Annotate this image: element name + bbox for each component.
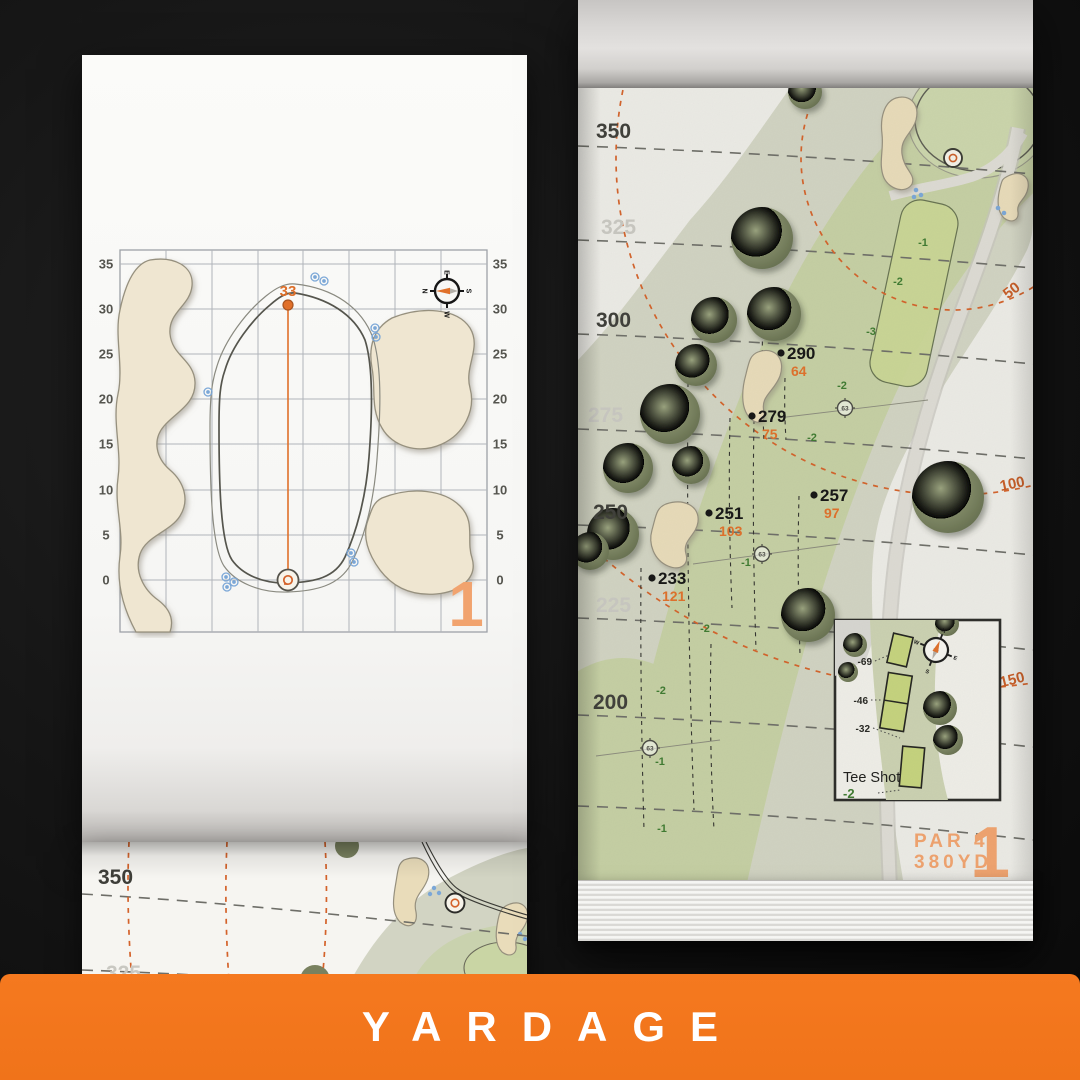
tick-25-r: 25	[493, 347, 507, 362]
tick-30-r: 30	[493, 302, 507, 317]
tick-15-r: 15	[493, 437, 507, 452]
pin-depth-line: 33	[278, 283, 299, 591]
compass-w: W	[443, 311, 450, 318]
compass-s: S	[465, 289, 472, 294]
green-detail-chart: 35 30 25 20 15 10 5 0 35 30 25 20 15 10 …	[92, 248, 512, 638]
tick-25-l: 25	[99, 347, 113, 362]
bunker-left-strip	[116, 259, 195, 632]
tick-15-l: 15	[99, 437, 113, 452]
tick-20-l: 20	[99, 392, 113, 407]
hole-map-book-page: 63 63 63	[578, 0, 1033, 940]
tick-10-l: 10	[99, 483, 113, 498]
page-curl-top	[578, 0, 1033, 89]
compass-e: E	[443, 270, 450, 275]
tick-20-r: 20	[493, 392, 507, 407]
page-stack-edge	[578, 880, 1033, 941]
front-edge-marker-icon	[278, 570, 299, 591]
tick-35-r: 35	[493, 257, 507, 272]
flipped-page-map: 350 325	[82, 842, 527, 982]
green-chart-axis-left: 35 30 25 20 15 10 5 0	[99, 257, 113, 588]
hole-map: 63 63 63	[578, 88, 1033, 880]
green-detail-book-page: 35 30 25 20 15 10 5 0 35 30 25 20 15 10 …	[82, 55, 527, 842]
flipped-hole-page: 350 325	[82, 842, 527, 982]
flipped-band-350: 350	[98, 866, 133, 889]
paper-texture	[578, 88, 1033, 880]
compass-n: N	[421, 288, 428, 293]
tick-0-l: 0	[102, 573, 109, 588]
flipped-pin-icon	[446, 894, 465, 913]
hole-number-detail: 1	[448, 568, 484, 638]
bunker-right-top	[371, 311, 474, 449]
pin-marker-dot	[283, 300, 293, 310]
tick-0-r: 0	[496, 573, 503, 588]
green-outline	[210, 284, 380, 592]
tick-5-l: 5	[102, 528, 109, 543]
pin-depth-label: 33	[280, 283, 297, 300]
tick-35-l: 35	[99, 257, 113, 272]
banner-title: YARDAGE	[337, 1003, 743, 1051]
yardage-book-mockup-scene: 35 30 25 20 15 10 5 0 35 30 25 20 15 10 …	[0, 0, 1080, 1080]
tick-30-l: 30	[99, 302, 113, 317]
tick-5-r: 5	[496, 528, 503, 543]
yardage-banner: YARDAGE	[0, 974, 1080, 1080]
green-chart-axis-right: 35 30 25 20 15 10 5 0	[493, 257, 507, 588]
tick-10-r: 10	[493, 483, 507, 498]
sprinkler-dots	[204, 273, 380, 591]
